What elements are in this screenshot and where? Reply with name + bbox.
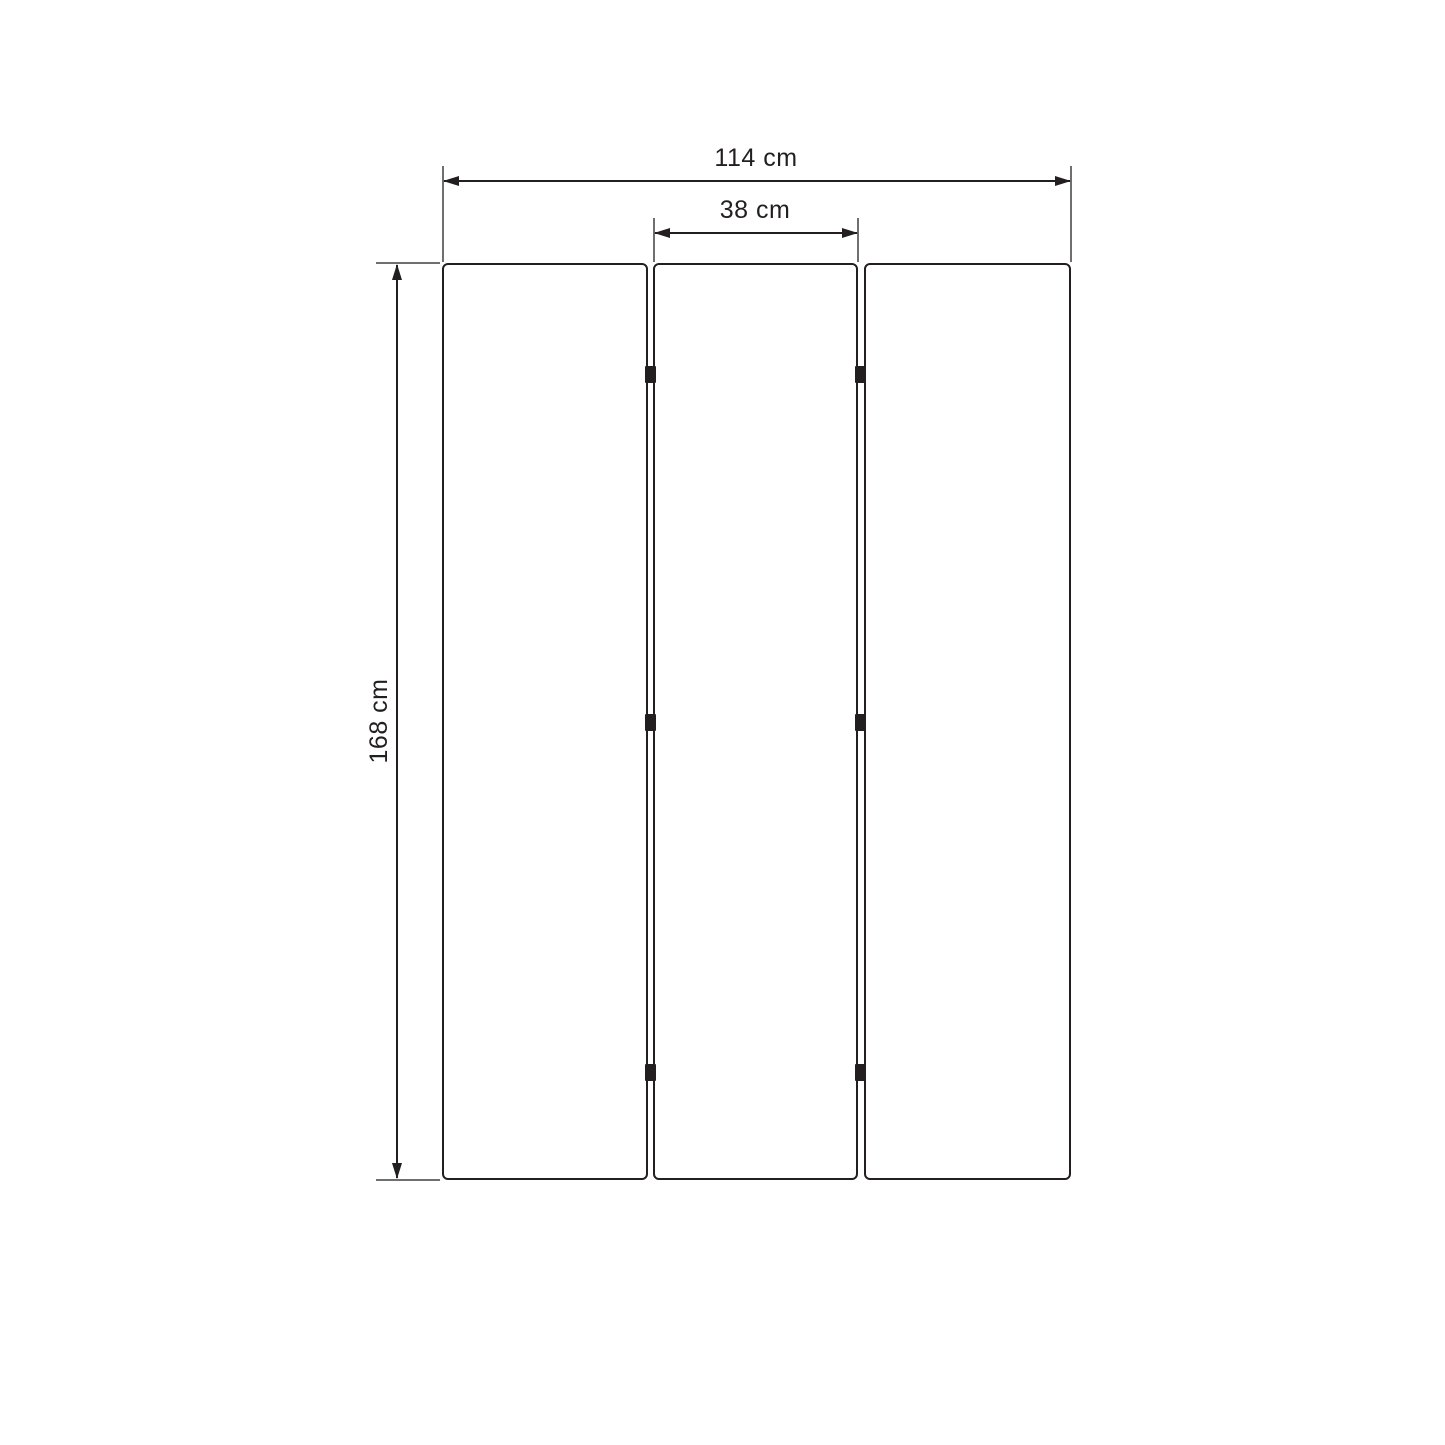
panel-left <box>442 263 648 1180</box>
height-label: 168 cm <box>364 679 394 764</box>
arrowhead-down-icon <box>392 1163 402 1179</box>
hinge-icon <box>855 366 866 383</box>
total-width-label: 114 cm <box>714 143 797 173</box>
hinge-icon <box>645 366 656 383</box>
extension-tick-height-bottom <box>376 1179 440 1181</box>
dimension-line-total-width <box>444 180 1070 182</box>
arrowhead-left-icon <box>443 176 459 186</box>
arrowhead-right-icon <box>1055 176 1071 186</box>
extension-line-panel-width-left <box>653 218 655 262</box>
dimension-line-height <box>396 265 398 1178</box>
hinge-icon <box>855 714 866 731</box>
extension-line-panel-width-right <box>857 218 859 262</box>
hinge-icon <box>645 714 656 731</box>
dimension-line-panel-width <box>655 232 857 234</box>
arrowhead-up-icon <box>392 264 402 280</box>
hinge-icon <box>645 1064 656 1081</box>
dimension-diagram-canvas: 114 cm 38 cm 168 cm <box>0 0 1445 1445</box>
panel-middle <box>653 263 858 1180</box>
arrowhead-right-icon <box>842 228 858 238</box>
hinge-icon <box>855 1064 866 1081</box>
extension-tick-height-top <box>376 262 440 264</box>
arrowhead-left-icon <box>654 228 670 238</box>
panel-right <box>864 263 1071 1180</box>
panel-width-label: 38 cm <box>720 195 791 225</box>
